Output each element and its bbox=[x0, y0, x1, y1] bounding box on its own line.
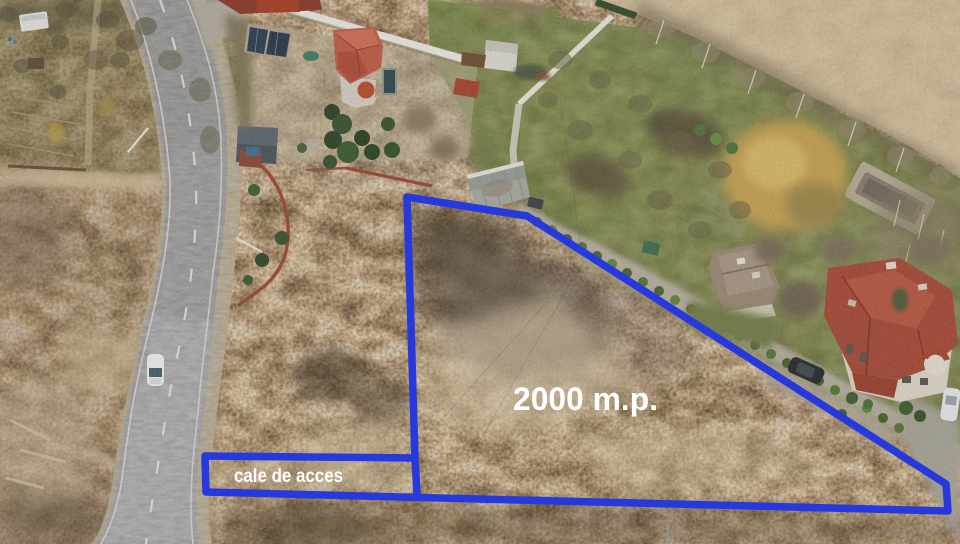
svg-text:2000 m.p.: 2000 m.p. bbox=[513, 381, 658, 417]
svg-text:cale de acces: cale de acces bbox=[234, 466, 343, 487]
